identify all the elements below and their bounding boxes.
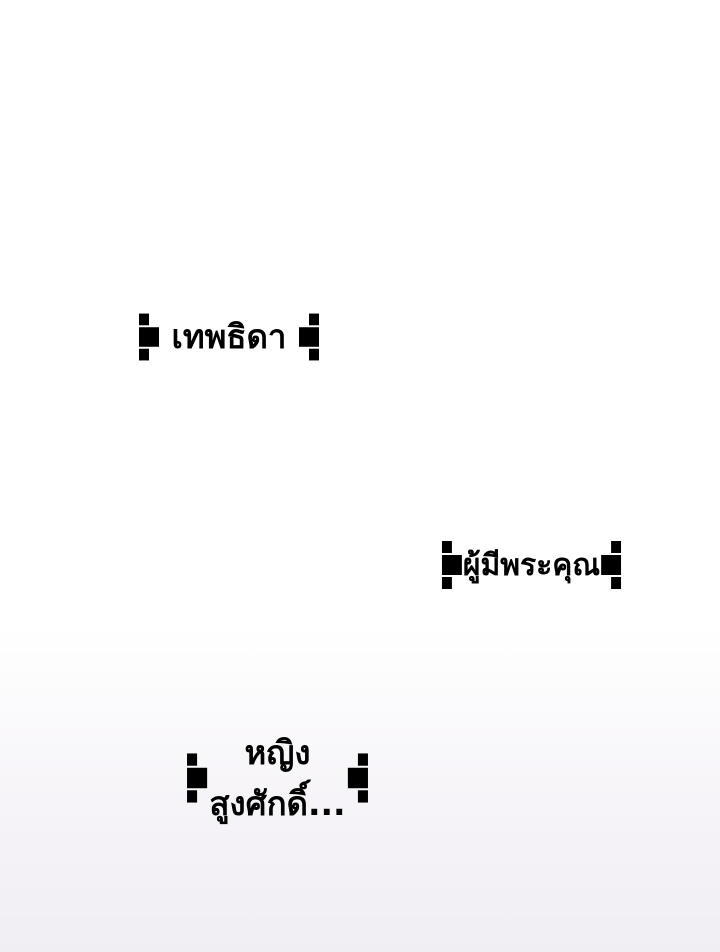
caption-box-3: หญิง สูงศักดิ์...: [181, 690, 374, 866]
caption-box-2: ผู้มีพระคุณ: [436, 479, 627, 651]
ornamental-frame-icon: [133, 253, 325, 421]
caption-box-1: เทพธิดา: [133, 253, 325, 421]
ornamental-frame-icon: [436, 479, 627, 651]
ornamental-frame-icon: [181, 690, 374, 866]
comic-page: เทพธิดา ผู้มีพระคุณ หญิง สูงศักดิ์...: [0, 0, 720, 952]
